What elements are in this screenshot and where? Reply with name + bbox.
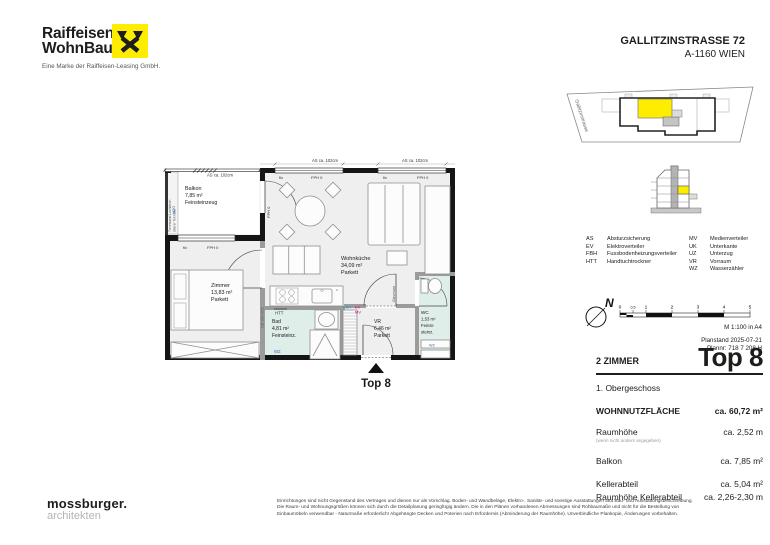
- scale-note: M 1:100 in A4: [570, 324, 762, 331]
- architect-logo: mossburger. architekten: [47, 496, 127, 522]
- room-wohnkueche-area: 34,09 m²: [341, 263, 362, 269]
- mv-label: MV: [355, 310, 361, 315]
- room-wc-floor-1: Feinst-: [421, 323, 435, 328]
- kitchen-cabinets: [273, 246, 320, 274]
- room-balkon-floor: Feinsteinzeug: [185, 200, 217, 206]
- room-bad-area: 4,81 m²: [272, 326, 289, 332]
- room-vr-floor: Parkett: [374, 333, 390, 339]
- window-fph-label-3: FPH 0: [207, 245, 219, 250]
- legend-item: WZWasserzähler: [689, 266, 770, 274]
- abbreviation-legend: ASAbsturzsicherung EVElektroverteiler FB…: [586, 236, 770, 274]
- uz-label: UZ UK+222: [260, 306, 265, 328]
- as-dim-label-1: AS ca. 102cm: [312, 158, 339, 163]
- entrance-arrow-icon: [368, 363, 384, 373]
- scale-tick-0: 0: [619, 305, 622, 311]
- architect-name: mossburger.: [47, 496, 127, 511]
- room-wc-area: 1,53 m²: [421, 317, 436, 322]
- brand-line1: Raiffeisen: [42, 26, 114, 41]
- room-balkon-name: Balkon: [185, 186, 201, 192]
- unit-row-balkon: Balkon ca. 7,85 m²: [596, 456, 763, 466]
- legend-item: FBHFussbodenheizungsverteiler: [586, 251, 681, 259]
- unit-row-kellerabteil: Kellerabteil ca. 5,04 m²: [596, 479, 763, 489]
- wc-shelf: [421, 340, 450, 348]
- dining-table: [295, 196, 325, 226]
- entrance-top-label: Top 8: [361, 378, 391, 390]
- site-plan: Gallitzinstrasse: [545, 84, 760, 159]
- scale-bar: 0 0,5 1 2 3 4 5: [614, 300, 766, 326]
- legend-item: HTTHandtuchtrockner: [586, 259, 681, 267]
- legal-disclaimer: Einrichtungen sind nicht Gegenstand des …: [277, 499, 747, 518]
- room-zimmer-name: Zimmer: [211, 283, 230, 289]
- legend-column-2: MVMedienverteiler UKUnterkante UZUnterzu…: [689, 236, 770, 274]
- htt-label: HTT: [275, 311, 284, 316]
- coffee-table: [387, 251, 407, 265]
- heading-rule: [596, 373, 763, 375]
- room-vr-area: 6,46 m²: [374, 326, 391, 332]
- scale-tick-5: 5: [749, 305, 752, 311]
- room-zimmer-area: 13,83 m²: [211, 290, 232, 296]
- brand-line2: WohnBau: [42, 41, 114, 56]
- floorplan-drawing: Balkon 7,85 m² Feinsteinzeug Wohnküche 3…: [163, 156, 463, 396]
- project-address: GALLITZINSTRASSE 72 A-1160 WIEN: [500, 35, 745, 60]
- wz-label-wc: WZ: [429, 344, 436, 348]
- scale-tick-4: 4: [723, 305, 726, 311]
- scale-tick-05: 0,5: [631, 306, 636, 310]
- address-street: GALLITZINSTRASSE 72: [500, 35, 745, 47]
- raumhoehe-footnote: (wenn nicht anders angegeben): [596, 438, 661, 443]
- room-wc-floor-2: steinz.: [421, 330, 433, 335]
- legend-item: ASAbsturzsicherung: [586, 236, 681, 244]
- sideboard: [425, 186, 450, 274]
- legend-item: MVMedienverteiler: [689, 236, 770, 244]
- room-bad-name: Bad: [272, 319, 281, 325]
- unit-top-label: Top 8: [698, 344, 763, 370]
- glasersatz-label: Glasersatz: [392, 285, 396, 302]
- room-wohnkueche-name: Wohnküche: [341, 256, 370, 262]
- scale-tick-3: 3: [697, 305, 700, 311]
- room-vr-name: VR: [374, 319, 381, 325]
- legend-item: EVElektroverteiler: [586, 244, 681, 252]
- as-dim-label-balkon: AS ca. 102cm: [207, 173, 234, 178]
- raiffeisen-cross-icon: [112, 24, 148, 58]
- room-wohnkueche-floor: Parkett: [341, 270, 359, 276]
- disclaimer-line-2: Die Raum- und Wohnungsgrößen können sich…: [277, 505, 747, 511]
- asterisk-mark: *: [336, 289, 338, 295]
- legend-column-1: ASAbsturzsicherung EVElektroverteiler FB…: [586, 236, 681, 274]
- fbh-label: FBH: [343, 305, 351, 310]
- scale-tick-2: 2: [671, 305, 674, 311]
- brand-logo-text: Raiffeisen WohnBau: [42, 26, 114, 56]
- architect-suffix: architekten: [47, 511, 127, 522]
- room-wc-name: WC: [421, 310, 429, 315]
- h2o-label: H2O: [171, 206, 176, 214]
- brand-tagline: Eine Marke der Raiffeisen-Leasing GmbH.: [42, 63, 160, 70]
- window-fph-label-1: FPH 0: [311, 175, 323, 180]
- as-dim-label-2: AS ca. 102cm: [402, 158, 429, 163]
- toilet: [421, 279, 428, 293]
- unit-info-panel: 2 ZIMMER Top 8 1. Obergeschoss WOHNNUTZF…: [596, 344, 763, 502]
- building-section: [645, 162, 707, 218]
- trennwand-label-1: Trennwand Lochblech: [168, 200, 172, 232]
- site-highlight-unit: [638, 99, 672, 118]
- section-highlight-unit: [678, 186, 689, 194]
- sofa: [368, 183, 420, 245]
- legend-item: UZUnterzug: [689, 251, 770, 259]
- floor-level-label: 1. Obergeschoss: [596, 383, 763, 393]
- unit-row-wohnnutzflaeche: WOHNNUTZFLÄCHE ca. 60,72 m²: [596, 406, 763, 416]
- window-fix-label-3: fix: [183, 245, 187, 250]
- disclaimer-line-3: Einbaumöbeln verwendbar - Naturmaße erfo…: [277, 512, 747, 518]
- wz-label-bad: WZ: [274, 349, 281, 354]
- door-fph-label: FPH 0: [266, 206, 271, 218]
- legend-item: VRVorraum: [689, 259, 770, 267]
- window-fix-label-1: fix: [279, 175, 283, 180]
- address-city: A-1160 WIEN: [500, 49, 745, 60]
- legend-item: UKUnterkante: [689, 244, 770, 252]
- room-bad-floor: Feinsteinz.: [272, 333, 296, 339]
- window-fix-label-2: fix: [383, 175, 387, 180]
- garderobe: [343, 310, 357, 355]
- scale-tick-1: 1: [645, 305, 648, 311]
- window-fph-label-2: FPH 0: [417, 175, 429, 180]
- unit-heading: 2 ZIMMER Top 8: [596, 344, 763, 370]
- room-balkon-area: 7,85 m²: [185, 193, 203, 199]
- north-letter: N: [605, 296, 614, 310]
- room-zimmer-floor: Parkett: [211, 297, 229, 303]
- rooms-count: 2 ZIMMER: [596, 356, 639, 370]
- unit-row-raumhoehe: Raumhöhe (wenn nicht anders angegeben) c…: [596, 427, 763, 443]
